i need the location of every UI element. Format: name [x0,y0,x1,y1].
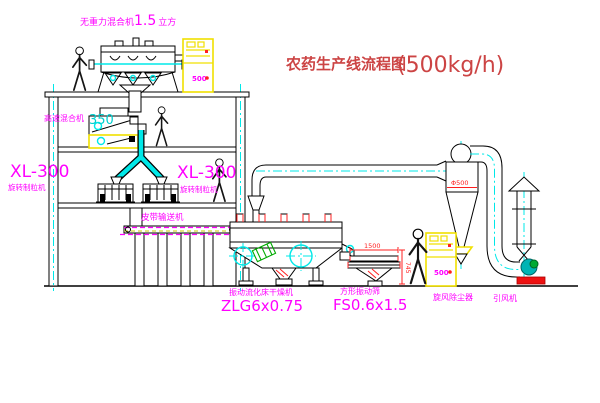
label-high-speed-mixer-model: 350 [89,113,114,128]
label-dryer-model: ZLG6x0.75 [221,297,303,315]
label-granulator-left-model: XL-300 [10,162,69,182]
label-cyclone: 旋风除尘器 [433,292,473,302]
cabinet-display: 500 [192,75,207,83]
svg-text:1500: 1500 [364,242,381,250]
label-fan: 引风机 [493,293,517,303]
person-figure-2 [156,107,168,146]
cabinet-display: 500 [434,269,449,277]
flow-diagram-canvas: 500 [0,0,600,403]
title-capacity: (500kg/h) [397,53,504,78]
label-sieve: 方形振动筛 [340,286,380,296]
page-title: 农药生产线流程图 [285,55,406,73]
spring-mounts [237,214,331,222]
induced-draft-fan [517,259,545,284]
label-gravity-mixer: 无重力混合机1.5立方 [80,13,176,29]
label-sieve-model: FS0.6x1.5 [333,296,407,314]
control-cabinet-1: 500 [183,39,213,92]
label-granulator-right: 旋转制粒机 [180,184,218,194]
label-dryer: 振动流化床干燥机 [229,287,293,297]
indicator-light [205,50,208,53]
label-granulator-right-model: XL-300 [177,163,236,183]
label-belt-conveyor: 皮带输送机 [141,212,184,223]
dimension-sieve-length: 1500 [350,242,398,253]
granulator-right [141,177,180,202]
control-cabinet-2: 500 [426,233,456,286]
mixer-discharge-cones [105,73,161,85]
svg-text:Φ500: Φ500 [451,179,469,187]
gravity-mixer-unit: 立方 [158,16,176,28]
belt-conveyor [120,226,238,235]
label-high-speed-mixer: 高速混合机 [44,113,84,123]
indicator-light [448,270,452,274]
support-piers [135,233,213,286]
indicator-light [448,244,451,247]
svg-text:745: 745 [404,262,411,274]
fluid-bed-dryer [229,214,354,285]
gravity-mixer [89,38,187,112]
granulator-left [96,177,135,202]
gravity-mixer-size: 1.5 [134,13,156,29]
gravity-mixer-name: 无重力混合机 [80,16,134,28]
exhaust-duct [252,161,452,196]
person-figure-1 [73,47,86,90]
label-granulator-left: 旋转制粒机 [8,182,46,192]
person-figure-4 [410,229,427,283]
indicator-light [205,76,209,80]
cad-drawing: 500 [0,0,600,403]
